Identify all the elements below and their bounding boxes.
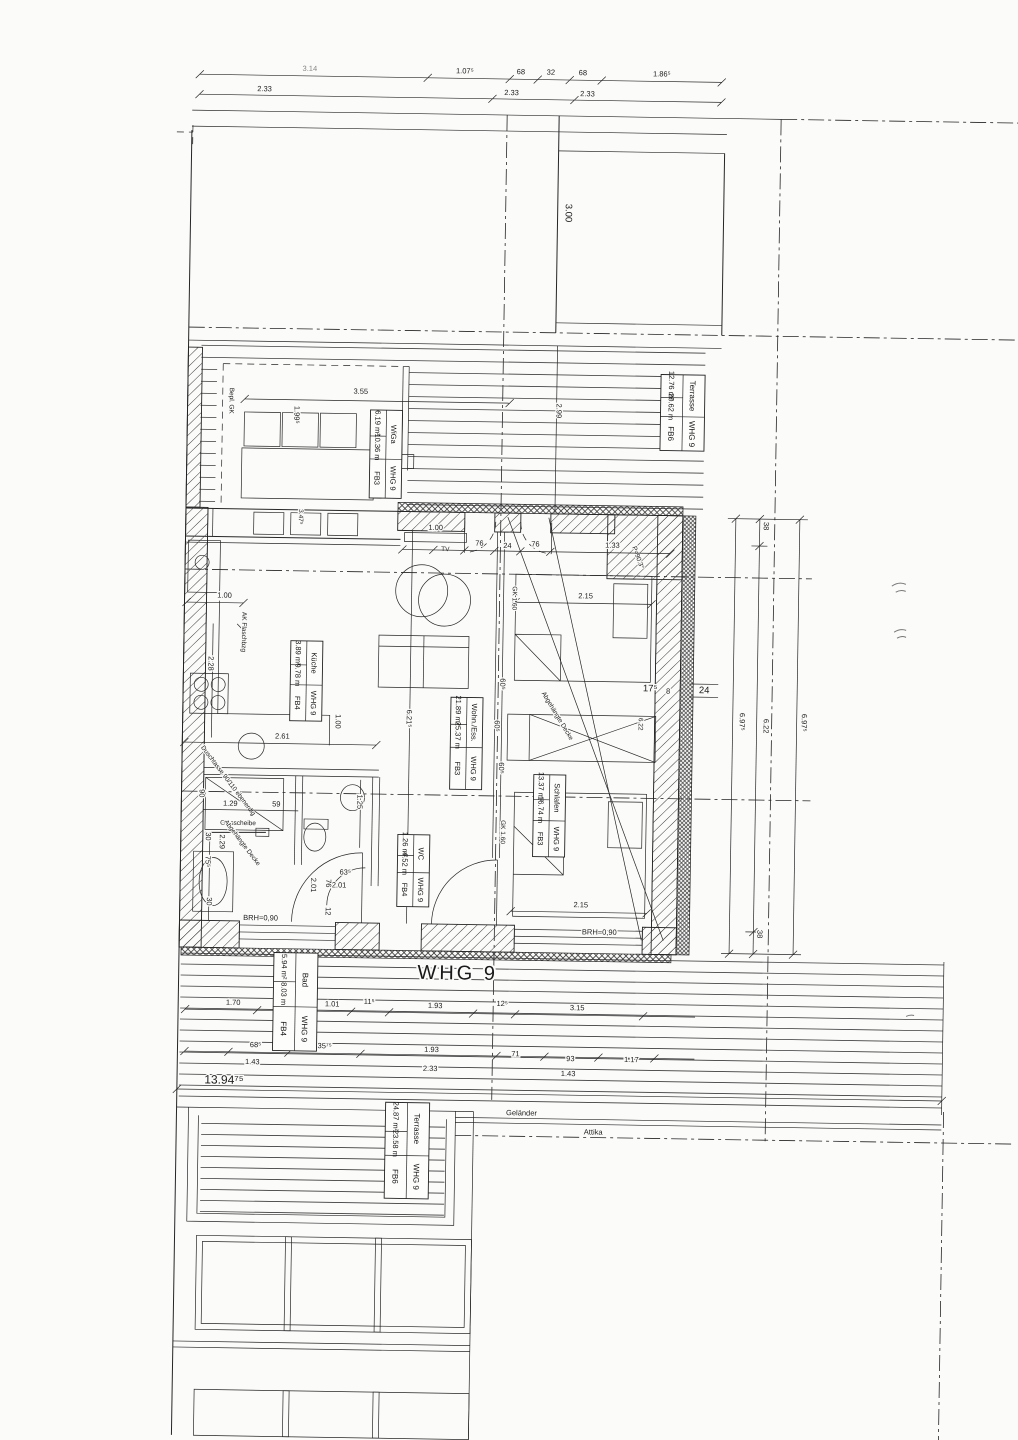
svg-text:76: 76: [324, 879, 333, 887]
svg-text:6.22: 6.22: [762, 719, 771, 734]
svg-text:Bad: Bad: [300, 973, 309, 987]
svg-text:12⁵: 12⁵: [496, 999, 508, 1008]
svg-text:4.52 m: 4.52 m: [400, 852, 409, 875]
svg-text:30: 30: [205, 897, 214, 905]
svg-text:Küche: Küche: [309, 652, 318, 673]
svg-text:1.86⁵: 1.86⁵: [653, 69, 671, 78]
svg-text:13.94⁷⁵: 13.94⁷⁵: [204, 1072, 244, 1087]
room-label-schlafen: Schlafen WHG 9 13.37 m² 16.74 m FB3: [533, 772, 566, 857]
svg-text:76: 76: [531, 539, 539, 548]
apartment-title: WHG 9: [417, 962, 498, 985]
svg-text:76: 76: [475, 539, 483, 548]
svg-text:1.00: 1.00: [217, 591, 232, 600]
svg-text:23.58 m: 23.58 m: [391, 1130, 400, 1157]
svg-text:8.03 m: 8.03 m: [279, 982, 288, 1005]
svg-text:60⁵: 60⁵: [493, 720, 502, 732]
svg-text:2.33: 2.33: [580, 89, 595, 98]
svg-text:1.33: 1.33: [605, 541, 620, 550]
svg-text:1.70: 1.70: [226, 998, 241, 1007]
svg-text:1.00: 1.00: [428, 523, 443, 532]
room-label-wiga: WiGa WHG 9 6.19 m² 10.36 m FB3: [369, 410, 402, 498]
svg-text:FB3: FB3: [372, 471, 381, 485]
svg-text:2.33: 2.33: [504, 88, 519, 97]
svg-text:WC: WC: [416, 847, 425, 860]
svg-text:BRH=0,90: BRH=0,90: [582, 927, 617, 937]
svg-text:FB6: FB6: [666, 426, 675, 441]
svg-text:1.29: 1.29: [223, 799, 238, 808]
svg-text:1.43: 1.43: [561, 1069, 576, 1078]
dim: 3.47⁵: [297, 509, 304, 525]
ak-note: AK Flaschbzg: [240, 612, 248, 653]
svg-text:BRH=0,90: BRH=0,90: [243, 913, 278, 923]
floorplan-scan: 3.55 1.99⁵ Bepl. GK 3.47⁵: [0, 0, 1018, 1440]
svg-text:8: 8: [666, 687, 670, 696]
svg-text:1.43: 1.43: [245, 1057, 260, 1066]
svg-text:FB4: FB4: [400, 883, 409, 897]
svg-text:2.33: 2.33: [257, 84, 272, 93]
svg-text:2.33: 2.33: [423, 1064, 438, 1073]
svg-text:Terrasse: Terrasse: [412, 1113, 421, 1144]
svg-text:6.97⁵: 6.97⁵: [738, 713, 747, 731]
svg-text:10.36 m: 10.36 m: [373, 433, 382, 460]
svg-text:WHG 9: WHG 9: [300, 1016, 309, 1043]
svg-text:2.28: 2.28: [206, 656, 215, 671]
dim: 6.22: [637, 718, 644, 731]
svg-text:30: 30: [204, 832, 213, 840]
room-label-terrasse-bottom: Terrasse WHG 9 24.87 m² 23.58 m FB6: [384, 1101, 430, 1198]
svg-text:17⁵: 17⁵: [643, 683, 658, 694]
svg-text:3.14: 3.14: [303, 64, 318, 73]
svg-text:1.00: 1.00: [334, 714, 343, 729]
svg-text:20.62 m: 20.62 m: [666, 393, 675, 420]
svg-text:24: 24: [699, 685, 710, 696]
svg-text:24: 24: [503, 541, 511, 550]
svg-text:6.97⁵: 6.97⁵: [800, 714, 809, 732]
svg-text:WHG 9: WHG 9: [687, 421, 696, 448]
svg-text:1.07⁵: 1.07⁵: [456, 66, 474, 75]
svg-text:Attika: Attika: [584, 1127, 604, 1136]
svg-text:3.89 m²: 3.89 m²: [294, 640, 303, 666]
svg-text:1.93: 1.93: [428, 1001, 443, 1010]
svg-text:12: 12: [324, 907, 333, 915]
svg-text:60⁵: 60⁵: [498, 678, 507, 690]
svg-text:38: 38: [755, 930, 764, 938]
svg-text:68: 68: [579, 68, 587, 77]
svg-text:1.17: 1.17: [624, 1055, 639, 1064]
svg-text:FB4: FB4: [279, 1021, 288, 1036]
svg-text:2.29: 2.29: [218, 834, 227, 849]
svg-text:6.19 m²: 6.19 m²: [373, 410, 382, 436]
svg-text:WiGa: WiGa: [389, 425, 398, 445]
room-label-kueche: Küche WHG 9 3.89 m² 9.78 m FB4: [290, 640, 323, 721]
svg-text:32: 32: [547, 68, 555, 77]
svg-text:63⁵: 63⁵: [339, 868, 351, 877]
svg-text:FB3: FB3: [453, 761, 462, 775]
bepl-gk-note: Bepl. GK: [227, 388, 234, 415]
svg-text:59: 59: [272, 799, 280, 808]
svg-text:Wohn./Ess.: Wohn./Ess.: [469, 703, 479, 741]
svg-text:1.93: 1.93: [424, 1045, 439, 1054]
svg-text:5.94 m²: 5.94 m²: [280, 954, 289, 980]
svg-text:60⁵: 60⁵: [497, 762, 506, 774]
room-label-wohnen: Wohn./Ess. WHG 9 21.89 m² 25.37 m FB3: [450, 695, 483, 789]
svg-text:2.15: 2.15: [573, 900, 588, 909]
svg-text:6.21⁵: 6.21⁵: [405, 710, 414, 728]
svg-text:75⁵: 75⁵: [203, 856, 212, 868]
svg-text:Geländer: Geländer: [506, 1108, 537, 1117]
dim: 1.99⁵: [292, 406, 301, 424]
svg-text:2.01: 2.01: [309, 878, 318, 893]
svg-text:WHG 9: WHG 9: [309, 691, 318, 716]
paper: [0, 0, 1018, 1440]
svg-text:2.99: 2.99: [554, 404, 563, 419]
svg-text:GK 1.60: GK 1.60: [499, 820, 506, 844]
upper-left-wall: [186, 347, 203, 507]
svg-text:68: 68: [517, 67, 525, 76]
svg-text:1.01: 1.01: [325, 999, 340, 1008]
svg-text:9.78 m: 9.78 m: [293, 663, 302, 686]
svg-text:WHG 9: WHG 9: [552, 827, 561, 852]
svg-text:WHG 9: WHG 9: [416, 877, 425, 902]
svg-text:90: 90: [197, 789, 206, 797]
svg-text:Schlafen: Schlafen: [552, 783, 561, 812]
tv-label: TV: [441, 546, 450, 553]
svg-text:68⁵: 68⁵: [250, 1040, 262, 1049]
svg-text:25.37 m: 25.37 m: [453, 722, 462, 749]
svg-text:WHG 9: WHG 9: [469, 756, 478, 781]
svg-text:93: 93: [566, 1054, 574, 1063]
svg-text:WHG 9: WHG 9: [411, 1164, 420, 1191]
svg-text:1.25: 1.25: [355, 794, 364, 809]
svg-text:WHG 9: WHG 9: [388, 466, 397, 491]
svg-text:16.74 m: 16.74 m: [536, 796, 545, 823]
svg-text:FB4: FB4: [293, 696, 302, 710]
svg-text:11⁵: 11⁵: [364, 997, 375, 1006]
floorplan-svg: 3.55 1.99⁵ Bepl. GK 3.47⁵: [0, 0, 1018, 1440]
dim: 3.55: [353, 387, 368, 396]
svg-text:2.15: 2.15: [578, 591, 593, 600]
svg-text:2.61: 2.61: [275, 731, 290, 740]
room-label-bad: Bad WHG 9 5.94 m² 8.03 m FB4: [272, 952, 318, 1051]
svg-text:24.87 m²: 24.87 m²: [391, 1102, 400, 1132]
svg-text:71: 71: [511, 1049, 519, 1058]
room-label-terrasse-top: Terrasse WHG 9 12.76 m² 20.62 m FB6: [660, 371, 705, 451]
room-label-wc: WC WHG 9 1.26 m² 4.52 m FB4: [397, 832, 430, 907]
svg-text:FB6: FB6: [390, 1169, 399, 1184]
svg-text:Terrasse: Terrasse: [688, 381, 697, 412]
svg-text:38: 38: [762, 522, 771, 530]
svg-text:GK 1.60: GK 1.60: [510, 586, 517, 610]
svg-text:FB3: FB3: [536, 832, 545, 846]
svg-text:3.00: 3.00: [563, 204, 574, 223]
svg-text:3.15: 3.15: [570, 1003, 585, 1012]
